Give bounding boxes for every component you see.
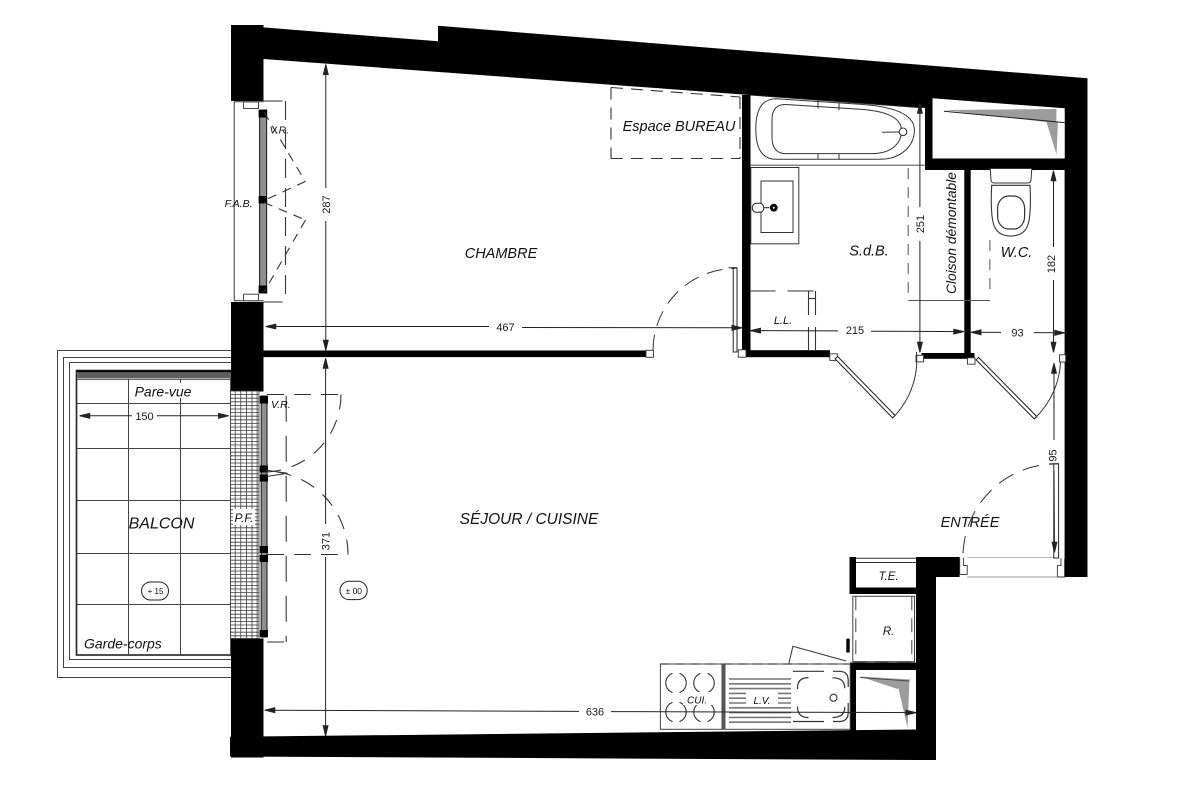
svg-text:Garde-corps: Garde-corps [84, 636, 162, 652]
svg-text:467: 467 [496, 322, 514, 334]
svg-text:Espace BUREAU: Espace BUREAU [623, 119, 736, 135]
svg-text:W.C.: W.C. [1001, 245, 1033, 261]
svg-text:SÉJOUR / CUISINE: SÉJOUR / CUISINE [460, 511, 599, 528]
svg-text:150: 150 [135, 411, 153, 423]
svg-text:Cloison démontable: Cloison démontable [944, 172, 959, 294]
svg-text:T.E.: T.E. [879, 571, 899, 583]
svg-text:CHAMBRE: CHAMBRE [465, 246, 538, 262]
svg-text:P.F.: P.F. [235, 511, 254, 525]
svg-text:V.R.: V.R. [271, 399, 291, 411]
svg-text:251: 251 [915, 215, 927, 233]
svg-text:CUI.: CUI. [687, 696, 707, 707]
svg-text:93: 93 [1011, 328, 1023, 340]
svg-text:ENTRÉE: ENTRÉE [941, 514, 1000, 531]
svg-text:95: 95 [1047, 449, 1059, 461]
svg-text:287: 287 [321, 195, 333, 213]
svg-text:L.V.: L.V. [753, 696, 770, 707]
svg-text:S.d.B.: S.d.B. [849, 243, 889, 259]
svg-text:+ 15: + 15 [148, 587, 164, 596]
svg-text:F.A.B.: F.A.B. [225, 198, 253, 210]
svg-text:R.: R. [883, 626, 895, 638]
svg-text:Pare-vue: Pare-vue [135, 384, 192, 400]
svg-text:L.L.: L.L. [774, 315, 792, 327]
svg-text:636: 636 [586, 707, 604, 719]
svg-text:215: 215 [846, 325, 864, 337]
svg-text:371: 371 [321, 532, 333, 550]
svg-text:182: 182 [1046, 255, 1058, 273]
svg-text:V.R.: V.R. [270, 125, 290, 137]
svg-text:BALCON: BALCON [129, 516, 195, 533]
svg-text:± 00: ± 00 [346, 586, 363, 596]
